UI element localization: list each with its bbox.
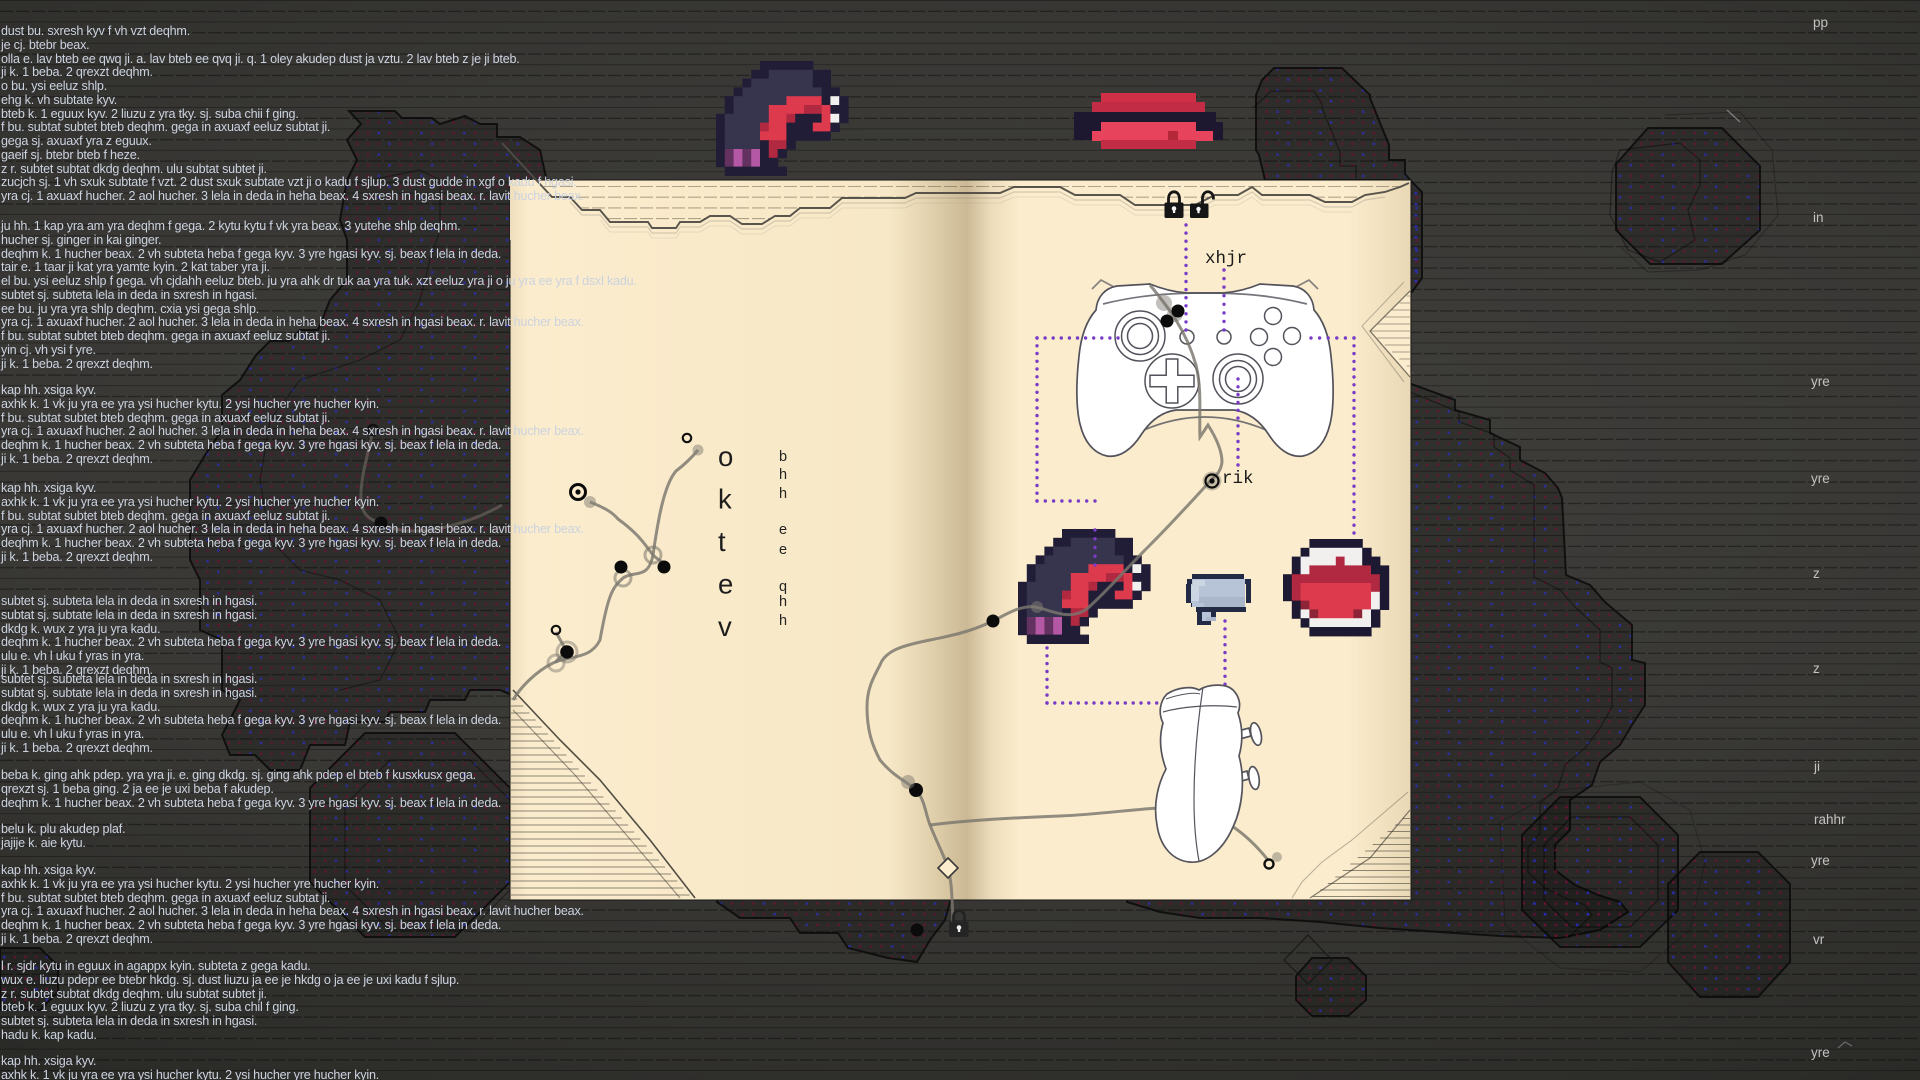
svg-text:h: h <box>779 467 787 483</box>
svg-text:v: v <box>718 611 732 642</box>
svg-text:e: e <box>779 522 787 538</box>
svg-text:e: e <box>718 569 733 600</box>
svg-text:k: k <box>718 484 732 515</box>
svg-text:rik: rik <box>1222 469 1254 489</box>
svg-text:h: h <box>779 613 787 629</box>
svg-text:xhjr: xhjr <box>1205 249 1247 269</box>
svg-text:q: q <box>779 579 787 595</box>
svg-text:t: t <box>718 526 726 557</box>
svg-text:h: h <box>779 486 787 502</box>
svg-text:h: h <box>779 594 787 610</box>
svg-text:o: o <box>718 441 733 472</box>
svg-text:b: b <box>779 449 787 465</box>
svg-text:e: e <box>779 542 787 558</box>
